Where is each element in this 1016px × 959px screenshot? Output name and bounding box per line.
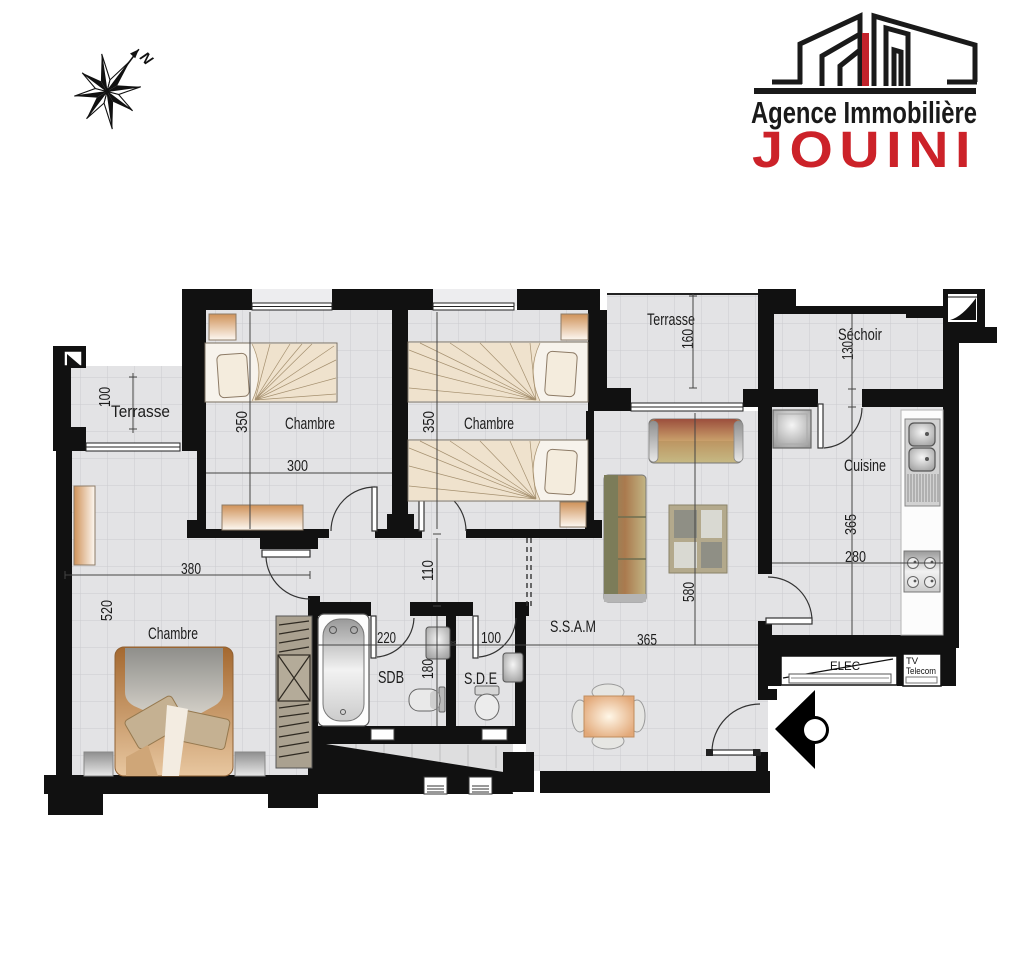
svg-text:JOUINI: JOUINI: [752, 121, 977, 178]
svg-text:ELEC: ELEC: [830, 661, 860, 673]
svg-text:110: 110: [420, 560, 437, 581]
svg-text:SDB: SDB: [378, 667, 404, 687]
svg-text:S.D.E: S.D.E: [464, 670, 497, 688]
svg-text:220: 220: [377, 630, 396, 647]
svg-text:Chambre: Chambre: [285, 415, 335, 433]
svg-text:520: 520: [99, 600, 116, 621]
svg-text:300: 300: [287, 458, 308, 475]
svg-text:S.S.A.M: S.S.A.M: [550, 618, 596, 636]
svg-text:350: 350: [234, 411, 251, 433]
svg-text:Terrasse: Terrasse: [111, 403, 170, 421]
svg-text:180: 180: [420, 659, 437, 679]
svg-text:Chambre: Chambre: [148, 625, 198, 643]
svg-text:160: 160: [680, 329, 697, 349]
svg-text:350: 350: [421, 411, 438, 433]
svg-text:Terrasse: Terrasse: [647, 311, 695, 329]
svg-text:Cuisine: Cuisine: [844, 457, 886, 475]
svg-text:100: 100: [97, 387, 114, 407]
svg-text:100: 100: [481, 630, 501, 647]
svg-text:Telecom: Telecom: [906, 666, 936, 677]
svg-text:130: 130: [840, 341, 857, 360]
svg-text:365: 365: [637, 632, 657, 649]
svg-text:Chambre: Chambre: [464, 415, 514, 433]
